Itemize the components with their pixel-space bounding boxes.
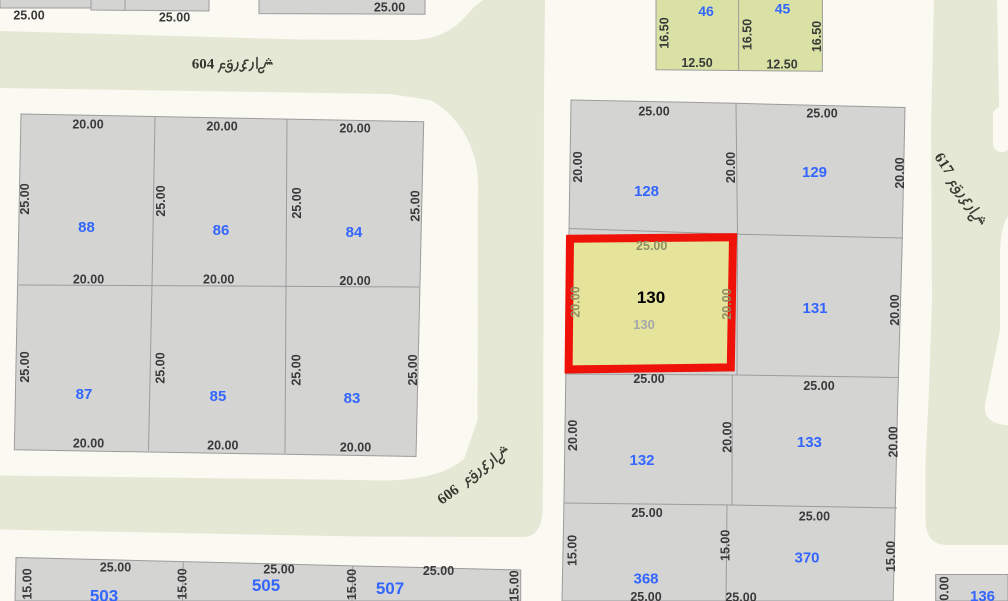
svg-text:20.00: 20.00 — [888, 294, 902, 325]
svg-text:25.00: 25.00 — [406, 354, 420, 385]
svg-text:46: 46 — [698, 3, 714, 19]
svg-text:25.00: 25.00 — [799, 509, 830, 523]
svg-text:505: 505 — [252, 576, 280, 595]
svg-text:25.00: 25.00 — [725, 591, 756, 601]
svg-text:87: 87 — [76, 386, 93, 403]
svg-text:15.00: 15.00 — [508, 570, 522, 601]
svg-text:20.00: 20.00 — [72, 117, 103, 131]
svg-text:20.00: 20.00 — [206, 120, 237, 134]
svg-text:15.00: 15.00 — [345, 569, 359, 600]
svg-text:86: 86 — [213, 222, 230, 239]
svg-text:20.00: 20.00 — [339, 122, 370, 136]
svg-text:84: 84 — [346, 224, 363, 241]
svg-text:20.00: 20.00 — [566, 420, 580, 451]
svg-text:20.00: 20.00 — [340, 441, 371, 455]
svg-text:370: 370 — [794, 549, 819, 566]
svg-text:20.00: 20.00 — [569, 286, 583, 317]
svg-text:131: 131 — [802, 300, 827, 317]
svg-text:129: 129 — [802, 164, 827, 181]
svg-text:15.00: 15.00 — [719, 530, 733, 561]
svg-text:25.00: 25.00 — [423, 564, 454, 578]
svg-text:20.00: 20.00 — [339, 274, 370, 288]
svg-text:25.00: 25.00 — [409, 190, 423, 221]
svg-text:25.00: 25.00 — [638, 104, 669, 118]
svg-text:16.50: 16.50 — [810, 21, 824, 52]
svg-text:12.50: 12.50 — [766, 58, 797, 72]
svg-text:12.50: 12.50 — [681, 56, 712, 70]
svg-text:25.00: 25.00 — [633, 372, 664, 386]
svg-text:20.00: 20.00 — [203, 273, 234, 287]
svg-text:83: 83 — [344, 390, 361, 407]
svg-text:25.00: 25.00 — [18, 183, 32, 214]
svg-text:130: 130 — [637, 288, 665, 307]
svg-text:20.00: 20.00 — [893, 157, 907, 188]
svg-text:136: 136 — [970, 588, 995, 601]
svg-text:130: 130 — [633, 317, 655, 332]
svg-text:25.00: 25.00 — [154, 185, 168, 216]
svg-text:20.00: 20.00 — [73, 437, 104, 451]
svg-text:133: 133 — [797, 434, 822, 451]
svg-text:128: 128 — [634, 183, 659, 200]
svg-text:20.00: 20.00 — [720, 421, 734, 452]
svg-text:503: 503 — [90, 587, 118, 601]
svg-text:16.50: 16.50 — [741, 19, 755, 50]
svg-text:25.00: 25.00 — [159, 11, 190, 25]
svg-text:25.00: 25.00 — [154, 352, 168, 383]
svg-text:25.00: 25.00 — [100, 561, 131, 575]
svg-text:25.00: 25.00 — [290, 354, 304, 385]
svg-text:88: 88 — [78, 219, 95, 236]
svg-text:25.00: 25.00 — [290, 187, 304, 218]
svg-text:16.50: 16.50 — [658, 17, 672, 48]
svg-text:132: 132 — [629, 452, 654, 469]
svg-text:20.00: 20.00 — [720, 288, 734, 319]
svg-text:50.00: 50.00 — [938, 576, 952, 601]
svg-text:20.00: 20.00 — [73, 273, 104, 287]
svg-text:25.00: 25.00 — [18, 351, 32, 382]
svg-text:25.00: 25.00 — [374, 1, 405, 15]
svg-text:20.00: 20.00 — [724, 152, 738, 183]
svg-text:15.00: 15.00 — [21, 568, 35, 599]
svg-text:25.00: 25.00 — [803, 379, 834, 393]
svg-text:604: 604 — [192, 57, 215, 73]
svg-text:25.00: 25.00 — [13, 8, 44, 22]
svg-text:15.00: 15.00 — [176, 568, 190, 599]
svg-text:25.00: 25.00 — [631, 506, 662, 520]
svg-text:25.00: 25.00 — [630, 590, 661, 601]
svg-text:15.00: 15.00 — [566, 535, 580, 566]
svg-text:20.00: 20.00 — [887, 426, 901, 457]
svg-text:25.00: 25.00 — [636, 239, 667, 253]
svg-text:45: 45 — [775, 0, 791, 16]
svg-text:368: 368 — [633, 571, 658, 588]
svg-text:507: 507 — [376, 579, 404, 598]
svg-text:25.00: 25.00 — [263, 563, 294, 577]
svg-text:20.00: 20.00 — [207, 439, 238, 453]
svg-text:85: 85 — [210, 388, 227, 405]
svg-text:20.00: 20.00 — [571, 151, 585, 182]
svg-text:25.00: 25.00 — [806, 107, 837, 121]
svg-text:15.00: 15.00 — [884, 541, 898, 572]
